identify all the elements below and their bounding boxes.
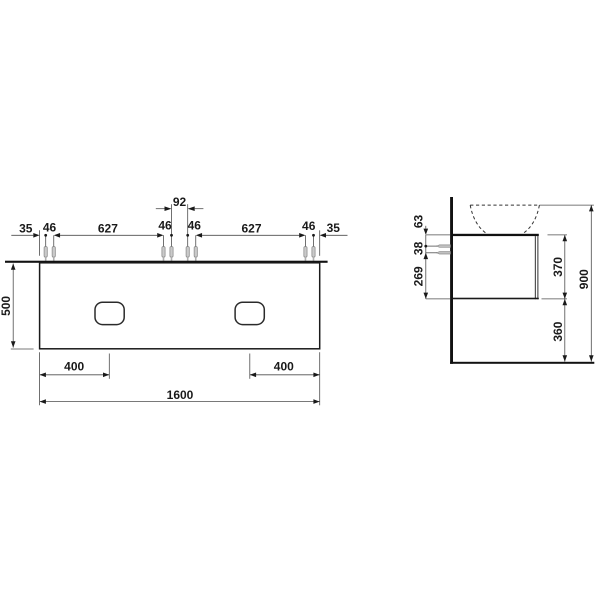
- svg-text:400: 400: [64, 360, 84, 374]
- svg-text:1600: 1600: [167, 388, 194, 402]
- svg-text:370: 370: [551, 257, 565, 277]
- svg-text:63: 63: [412, 215, 426, 229]
- svg-text:46: 46: [158, 218, 172, 232]
- svg-text:269: 269: [412, 266, 426, 286]
- svg-text:35: 35: [327, 221, 341, 235]
- svg-text:627: 627: [98, 222, 118, 236]
- svg-text:900: 900: [577, 269, 591, 289]
- svg-text:38: 38: [412, 241, 426, 255]
- svg-text:360: 360: [551, 321, 565, 341]
- svg-text:400: 400: [274, 360, 294, 374]
- svg-text:627: 627: [241, 222, 261, 236]
- svg-text:35: 35: [19, 221, 33, 235]
- svg-text:500: 500: [0, 296, 13, 316]
- svg-text:92: 92: [173, 195, 187, 209]
- svg-text:46: 46: [188, 218, 202, 232]
- svg-text:46: 46: [43, 221, 57, 235]
- svg-text:46: 46: [302, 219, 316, 233]
